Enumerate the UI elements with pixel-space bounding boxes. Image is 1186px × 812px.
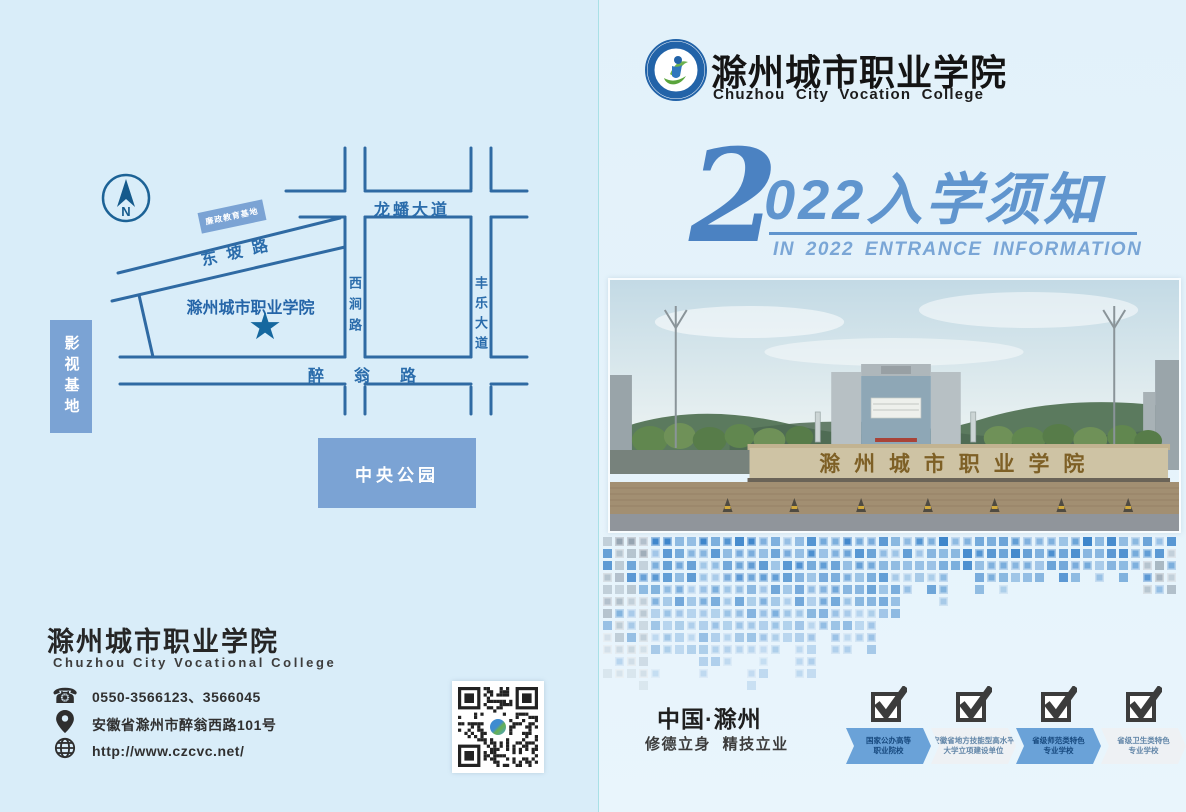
campus-photo: 滁州城市职业学院 bbox=[608, 278, 1181, 533]
website-url: http://www.czcvc.net/ bbox=[92, 743, 244, 759]
qr-center-logo-icon bbox=[488, 717, 508, 737]
road-fengle-north bbox=[471, 148, 491, 189]
contact-website: http://www.czcvc.net/ bbox=[52, 737, 244, 764]
badge-line1: 省级卫生类特色 bbox=[1117, 736, 1170, 747]
badge-normal-school: 省级师范类特色专业学校 bbox=[1016, 686, 1101, 768]
badge-line2: 大学立项建设单位 bbox=[944, 746, 1004, 757]
badge-line2: 职业院校 bbox=[874, 746, 904, 757]
badge-line1: 安徽省地方技能型高水平 bbox=[932, 736, 1015, 747]
campus-map-roads: N bbox=[0, 0, 598, 540]
college-name-cn: 滁州城市职业学院 bbox=[47, 620, 279, 659]
badge-skill-university: 安徽省地方技能型高水平大学立项建设单位 bbox=[931, 686, 1016, 768]
photo-road bbox=[610, 514, 1179, 531]
title-text: 022入学须知 bbox=[764, 155, 1102, 236]
title-subtitle-en: IN 2022 ENTRANCE INFORMATION bbox=[773, 239, 1142, 261]
badge-line2: 专业学校 bbox=[1129, 746, 1159, 757]
checkbox-icon bbox=[1040, 686, 1077, 723]
photo-main-building bbox=[831, 364, 961, 448]
checkbox-icon bbox=[955, 686, 992, 723]
badge-public-college: 国家公办高等职业院校 bbox=[846, 686, 931, 768]
map-place-central-park: 中央公园 bbox=[318, 438, 476, 508]
college-name-en: Chuzhou City Vocational College bbox=[53, 655, 336, 670]
compass-icon: N bbox=[103, 175, 149, 221]
front-cover-page: 滁州城市职业学院 Chuzhou City Vocation College 2… bbox=[598, 0, 1186, 812]
checkbox-icon bbox=[1125, 686, 1162, 723]
contact-address: 安徽省滁州市醉翁西路101号 bbox=[52, 710, 276, 739]
badge-line1: 省级师范类特色 bbox=[1032, 736, 1085, 747]
cover-college-name-en: Chuzhou City Vocation College bbox=[713, 86, 984, 103]
road-label-fengle: 丰乐大道 bbox=[471, 276, 490, 356]
phone-icon: ☎ bbox=[52, 684, 78, 709]
road-label-xijian: 西涧路 bbox=[345, 276, 364, 339]
road-dongpo-road bbox=[112, 218, 345, 357]
road-label-zuiweng: 醉翁路 bbox=[308, 362, 446, 386]
badge-health-school: 省级卫生类特色专业学校 bbox=[1101, 686, 1186, 768]
checkbox-icon bbox=[870, 686, 907, 723]
photo-gate-text: 滁州城市职业学院 bbox=[819, 451, 1098, 476]
contact-phone: ☎ 0550-3566123、3566045 bbox=[52, 684, 261, 709]
map-place-film-base: 影视基地 bbox=[50, 320, 92, 433]
address-text: 安徽省滁州市醉翁西路101号 bbox=[92, 715, 276, 735]
badge-line2: 专业学校 bbox=[1044, 746, 1074, 757]
qr-code bbox=[452, 681, 544, 773]
road-stubs-south bbox=[345, 387, 491, 414]
cover-header: 滁州城市职业学院 Chuzhou City Vocation College bbox=[599, 0, 1186, 120]
slogan-text: 修德立身 精技立业 bbox=[645, 733, 789, 754]
photo-plaza bbox=[610, 482, 1179, 514]
college-logo-icon bbox=[644, 38, 708, 102]
road-xijian-north bbox=[345, 148, 365, 189]
photo-side-wall bbox=[610, 450, 750, 474]
badge-line1: 国家公办高等 bbox=[866, 736, 911, 747]
title-underline bbox=[769, 232, 1137, 235]
map-college-star-marker: ★ bbox=[240, 308, 290, 346]
road-label-longpan: 龙蟠大道 bbox=[374, 196, 450, 220]
brochure-cover: N 龙蟠大道 东坡路 醉翁路 西涧路 丰乐大道 廉政教育基地 影视基地 中央公园… bbox=[0, 0, 1186, 812]
location-text: 中国·滁州 bbox=[657, 700, 762, 734]
back-cover-page: N 龙蟠大道 东坡路 醉翁路 西涧路 丰乐大道 廉政教育基地 影视基地 中央公园… bbox=[0, 0, 598, 812]
globe-icon bbox=[52, 737, 78, 764]
location-pin-icon bbox=[52, 710, 78, 739]
mosaic-pattern bbox=[603, 537, 1183, 695]
cover-title: 2 022入学须知 IN 2022 ENTRANCE INFORMATION bbox=[599, 135, 1186, 270]
svg-text:N: N bbox=[121, 204, 130, 219]
phone-number: 0550-3566123、3566045 bbox=[92, 687, 261, 707]
